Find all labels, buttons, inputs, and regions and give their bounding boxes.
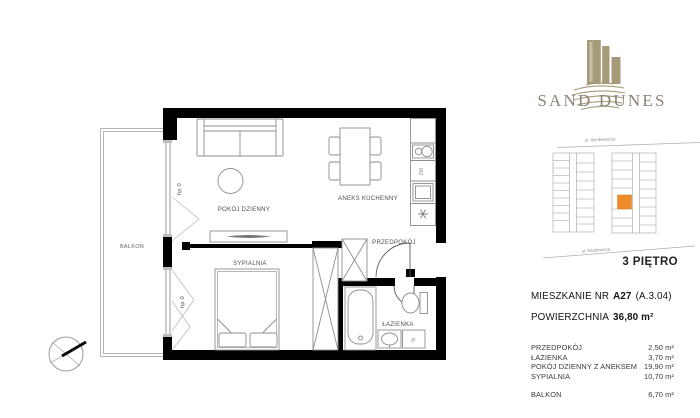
washer-label: P	[411, 339, 415, 345]
room-areas-table: PRZEDPOKÓJ 2,50 m² ŁAZIENKA 3,70 m² POKÓ…	[531, 343, 674, 400]
tv-cabinet	[210, 231, 287, 242]
room-area: 2,50 m²	[648, 343, 674, 353]
floorplan-card: POKÓJ DZIENNY ANEKS KUCHENNY PRZEDPOKÓJ …	[0, 0, 700, 418]
window-bedroom	[166, 267, 170, 337]
room-area-row: POKÓJ DZIENNY Z ANEKSEM 19,90 m²	[531, 362, 674, 372]
highlighted-unit	[618, 195, 632, 209]
unit-number-line: MIESZKANIE NRA27(A.3.04)	[531, 291, 672, 302]
sofa	[197, 119, 283, 156]
room-label-hall: PRZEDPOKÓJ	[372, 239, 416, 246]
brand-name: SAND DUNES	[522, 91, 682, 111]
room-name: PRZEDPOKÓJ	[531, 343, 582, 353]
minimap-building-left	[553, 153, 594, 232]
room-area: 19,90 m²	[644, 362, 674, 372]
room-label-balcony: BALKON	[120, 244, 144, 250]
unit-area-line: POWIERZCHNIA36,80 m²	[531, 312, 653, 323]
room-area: 6,70 m²	[648, 390, 674, 400]
room-name: POKÓJ DZIENNY Z ANEKSEM	[531, 362, 637, 372]
bathtub	[345, 287, 376, 350]
room-label-bedroom: SYPIALNIA	[233, 261, 267, 267]
unit-title-prefix: MIESZKANIE NR	[531, 291, 609, 302]
room-area-row: ŁAZIENKA 3,70 m²	[531, 353, 674, 363]
room-area-row: PRZEDPOKÓJ 2,50 m²	[531, 343, 674, 353]
location-minimap: ul. Sienkiewicza ul. Mickiewicza	[543, 136, 700, 258]
street-label-top: ul. Sienkiewicza	[585, 136, 616, 142]
dining-table	[329, 128, 381, 185]
unit-number: A27	[613, 291, 631, 302]
hall-cabinet	[342, 239, 367, 281]
entrance-door	[376, 243, 410, 277]
toilet	[402, 293, 428, 314]
room-area: 10,70 m²	[644, 372, 674, 382]
window-swing-marks	[172, 197, 199, 350]
room-label-bath: ŁAZIENKA	[382, 322, 413, 328]
unit-code: (A.3.04)	[636, 291, 672, 302]
balcony-outline	[101, 129, 164, 357]
sill-height-label-living: hp 0	[177, 183, 183, 195]
wardrobe	[313, 248, 338, 350]
area-label: POWIERZCHNIA	[531, 312, 609, 323]
room-label-kitchen: ANEKS KUCHENNY	[338, 196, 398, 202]
room-name: SYPIALNIA	[531, 372, 570, 382]
bed	[215, 269, 279, 350]
room-label-living: POKÓJ DZIENNY	[218, 206, 270, 213]
street-line-top	[557, 143, 700, 148]
room-name: BALKON	[531, 390, 562, 400]
room-area-row: SYPIALNIA 10,70 m²	[531, 372, 674, 382]
minimap-building-right	[612, 153, 656, 233]
balcony-area-row: BALKON 6,70 m²	[531, 390, 674, 400]
street-label-bottom: ul. Mickiewicza	[581, 246, 611, 253]
north-arrow	[49, 337, 86, 371]
coffee-table	[218, 169, 243, 194]
room-name: ŁAZIENKA	[531, 353, 568, 363]
area-value: 36,80 m²	[613, 312, 653, 323]
window-living	[166, 140, 170, 237]
sill-height-label-bedroom: hp 0	[180, 296, 186, 308]
washbasin	[378, 330, 401, 348]
room-area: 3,70 m²	[648, 353, 674, 363]
floor-label: 3 PIĘTRO	[540, 256, 678, 268]
dishwasher-label: ZM	[419, 168, 425, 176]
